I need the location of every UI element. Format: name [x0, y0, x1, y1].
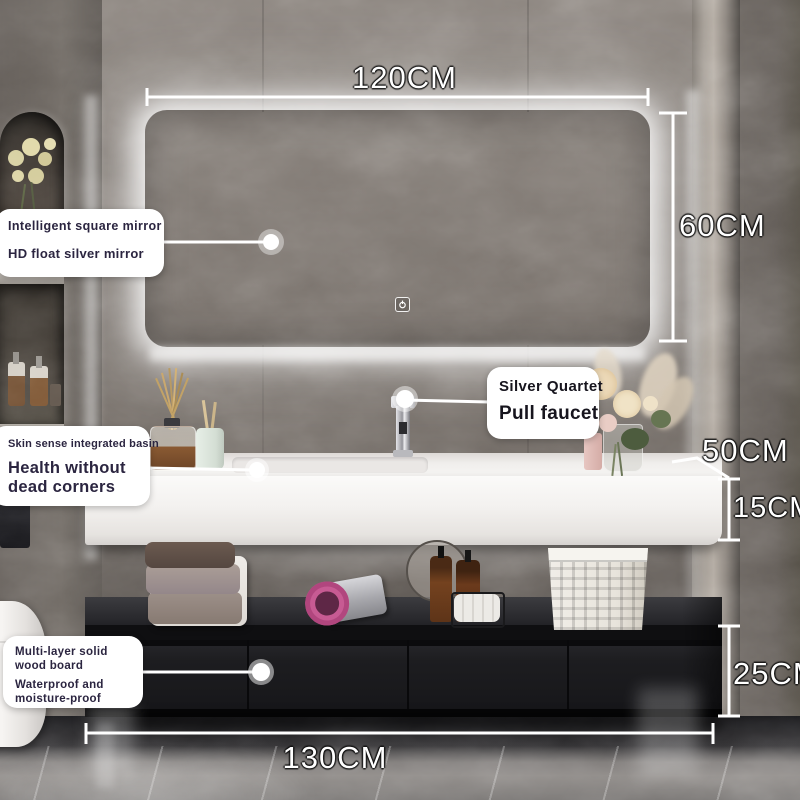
wall-niche-bottom — [0, 284, 64, 424]
towel-brown — [145, 542, 235, 568]
flower — [22, 138, 40, 156]
amenity-rack — [402, 536, 502, 630]
faucet-base — [393, 450, 413, 457]
soap-pump — [36, 356, 42, 368]
product-scene: 120CM 60CM 50CM 15CM 25CM 130CM Intellig… — [0, 0, 800, 800]
dim-label-counter-depth: 50CM — [702, 433, 789, 469]
toilet-flush-plate — [0, 503, 30, 548]
cabinet-floor-shadow — [85, 716, 722, 728]
towel-grey — [148, 592, 242, 624]
bud-cream — [643, 396, 658, 411]
wall-right — [740, 0, 800, 730]
dim-label-mirror-height: 60CM — [679, 208, 766, 244]
callout-board-body: Waterproof and moisture-proof — [15, 678, 133, 706]
basket-rim — [548, 548, 648, 562]
amber-bottle — [430, 556, 452, 622]
flower — [44, 138, 56, 150]
bottle-pump — [438, 546, 444, 558]
dim-label-mirror-width: 120CM — [352, 60, 457, 96]
stem — [617, 442, 623, 476]
callout-faucet-line1: Silver Quartet — [499, 378, 591, 396]
greenery — [621, 428, 649, 450]
faucet — [391, 396, 415, 458]
floor-led-streak — [96, 722, 114, 788]
callout-basin-title: Skin sense integrated basin — [8, 438, 146, 451]
cup — [196, 428, 224, 470]
wall-seam — [262, 0, 264, 112]
dim-label-cabinet-width: 130CM — [255, 740, 415, 776]
flower — [38, 152, 52, 166]
drawer-groove — [85, 640, 722, 646]
wall-seam — [262, 345, 264, 455]
towel-taupe — [146, 564, 240, 594]
dahlia-cream — [613, 390, 641, 418]
callout-basin: Skin sense integrated basin Health witho… — [0, 426, 150, 506]
sink-recess — [232, 457, 428, 473]
bottle-pump — [465, 550, 471, 562]
dim-label-drawer-height: 25CM — [733, 656, 800, 692]
callout-mirror-line2: HD float silver mirror — [8, 246, 158, 262]
soap-pump — [13, 352, 19, 364]
power-glyph — [398, 300, 407, 309]
wicker-basket — [548, 548, 648, 630]
callout-mirror: Intelligent square mirror HD float silve… — [0, 209, 164, 277]
dim-label-counter-height: 15CM — [733, 492, 800, 525]
jar — [50, 384, 61, 406]
stem — [611, 444, 616, 476]
flower — [8, 150, 24, 166]
callout-board: Multi-layer solid wood board Waterproof … — [3, 636, 143, 708]
wall-seam — [527, 0, 529, 112]
faucet-logo-window — [399, 422, 407, 434]
vanity-counter-front — [85, 476, 722, 545]
callout-basin-body: Health without dead corners — [8, 459, 140, 497]
power-icon — [395, 297, 410, 312]
wire-basket — [451, 592, 505, 628]
reed-diffuser — [146, 366, 196, 470]
drawer-seam — [407, 640, 409, 709]
soap-bottle — [30, 366, 48, 406]
flower — [12, 170, 24, 182]
towel-stack — [143, 540, 249, 630]
callout-mirror-line1: Intelligent square mirror — [8, 219, 158, 234]
floor-led-streak — [638, 688, 698, 776]
toothbrush-cup — [196, 400, 226, 470]
drawer-seam — [567, 640, 569, 709]
rose-pink — [599, 414, 617, 432]
cabinet-drawers — [85, 640, 722, 709]
soap-bottle — [8, 362, 25, 406]
greenery — [651, 410, 671, 428]
callout-faucet-line2: Pull faucet — [499, 403, 591, 426]
callout-faucet: Silver Quartet Pull faucet — [487, 367, 599, 439]
drawer-seam — [247, 640, 249, 709]
callout-board-title: Multi-layer solid wood board — [15, 645, 133, 673]
